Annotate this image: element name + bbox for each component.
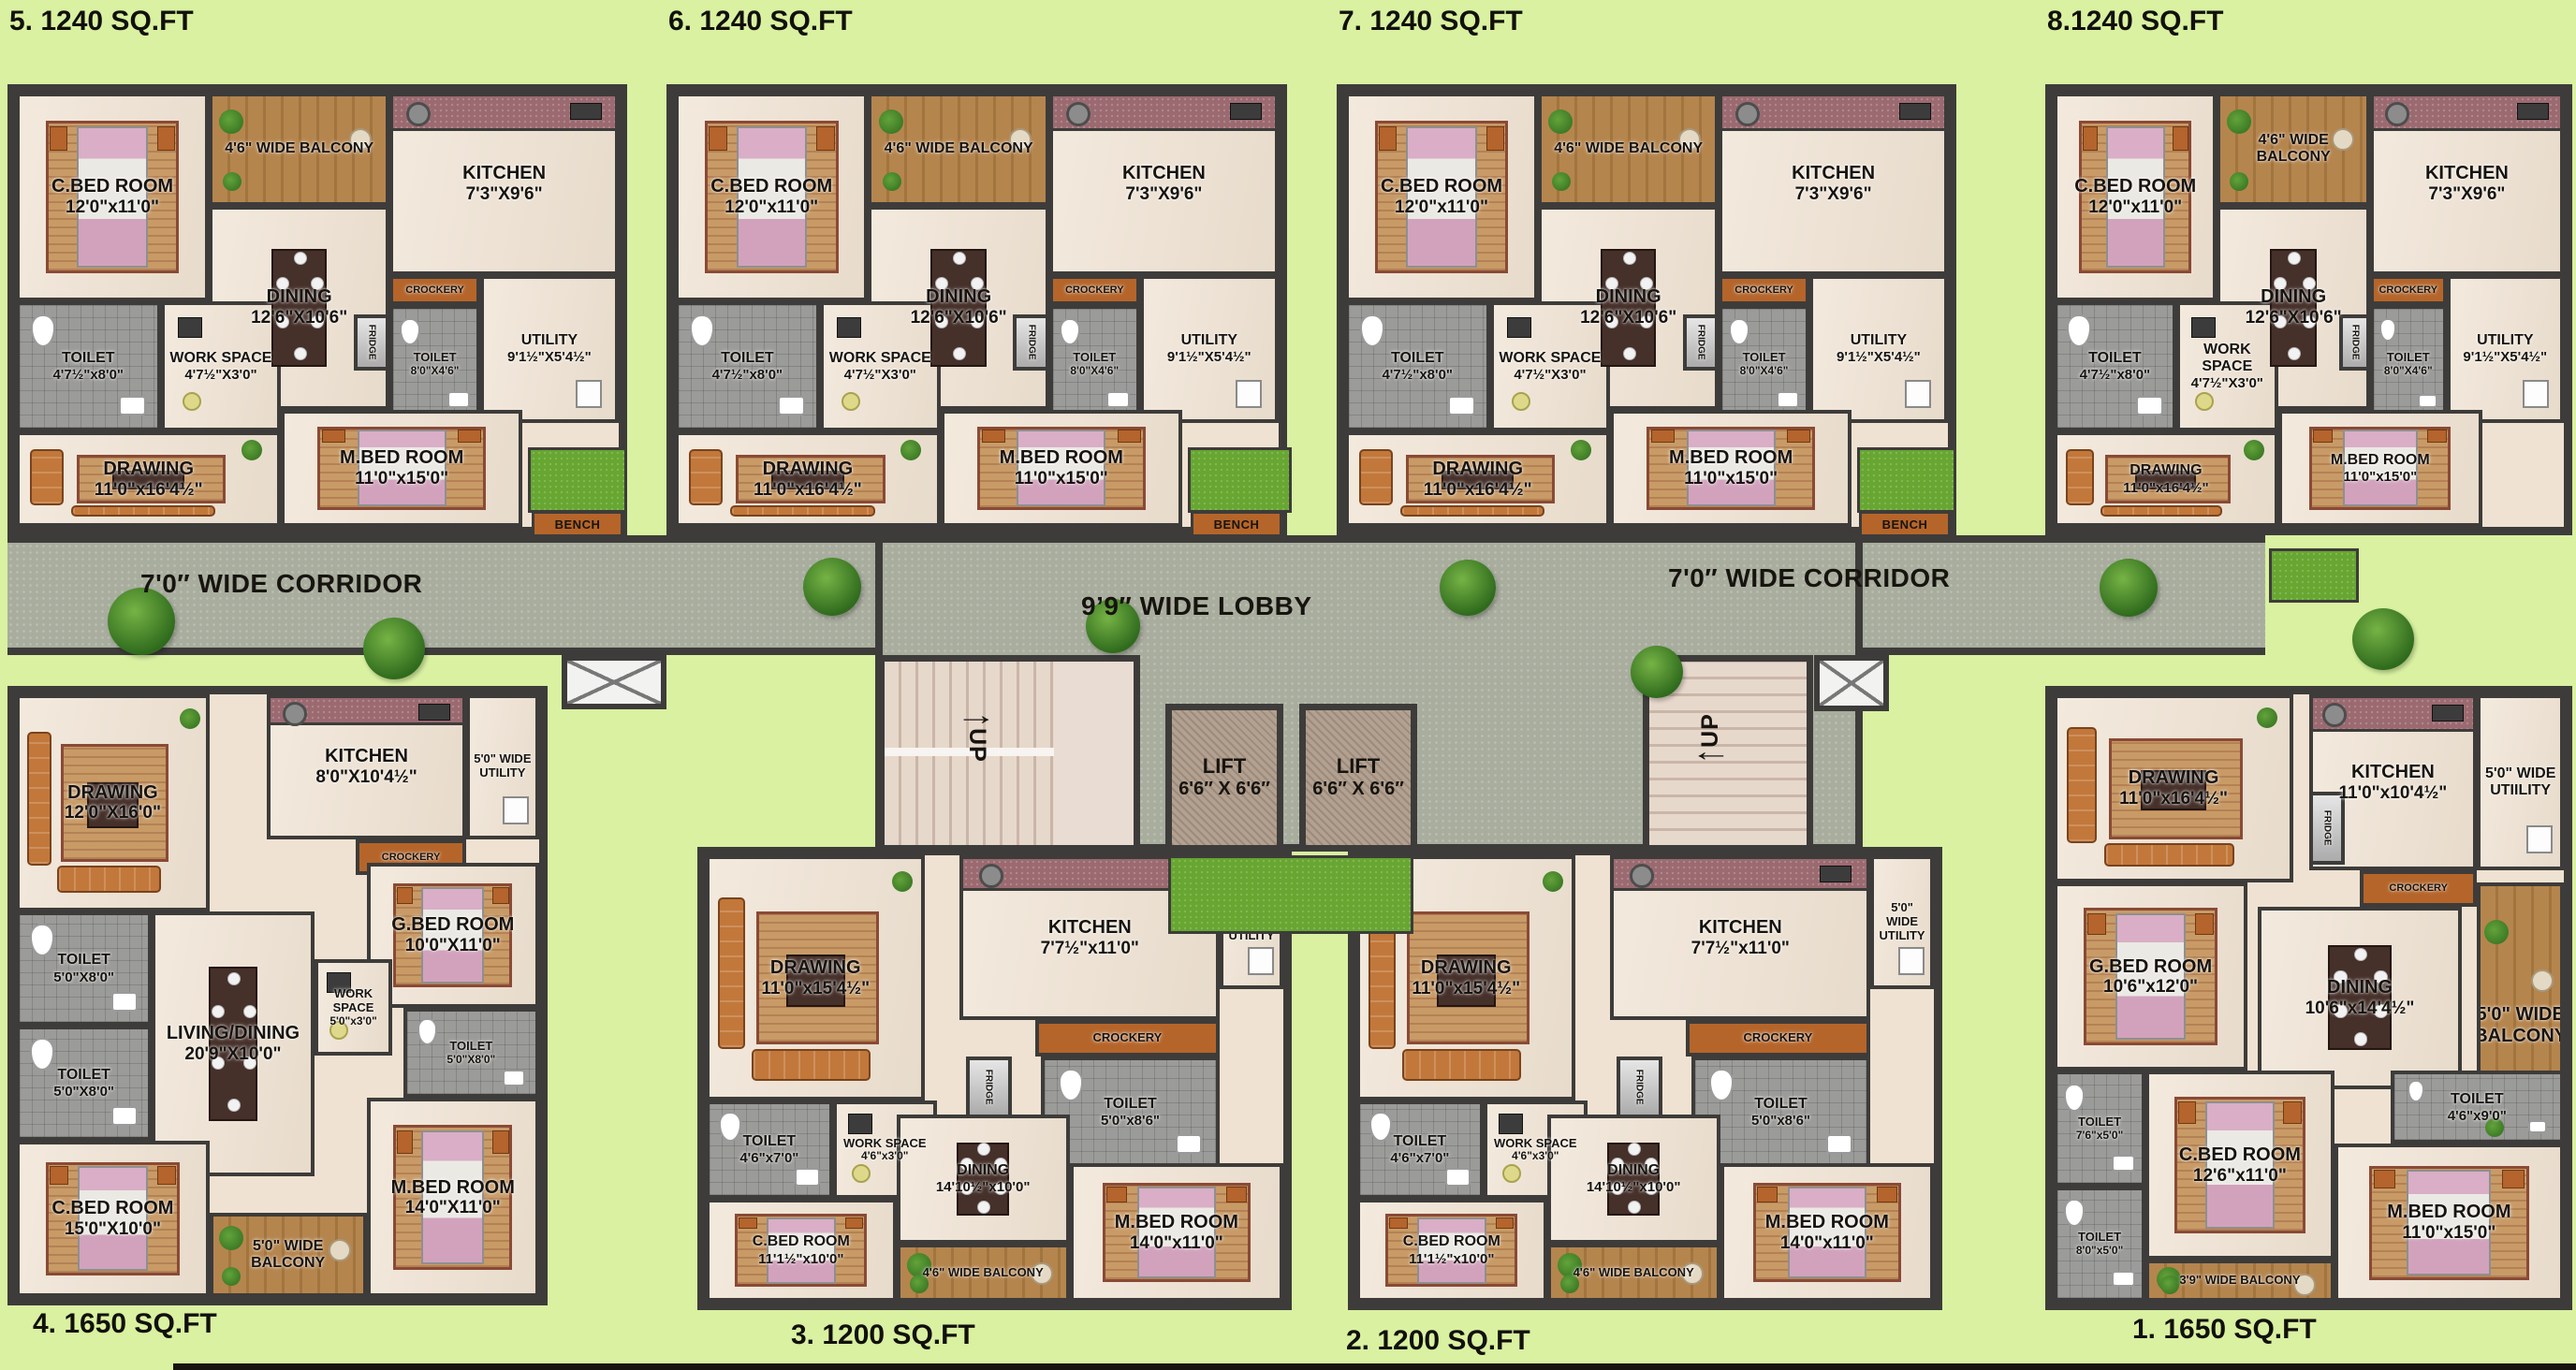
washbasin-icon <box>503 1070 525 1086</box>
up-text: UP <box>963 728 990 763</box>
room-name: 4'6" WIDE BALCONY <box>1554 140 1703 157</box>
unit-2-room-label: TOILET5'0"x8'6" <box>1749 1096 1812 1129</box>
side-table-icon <box>2283 1101 2301 1123</box>
unit-1-room-g-bed-room-5: G.BED ROOM10'6"x12'0" <box>2054 882 2247 1071</box>
room-name: KITCHEN <box>1041 917 1139 939</box>
unit-7-room-label: CROCKERY <box>1733 284 1795 297</box>
side-table-icon <box>492 887 509 904</box>
side-table-icon <box>1787 430 1810 443</box>
room-name: CROCKERY <box>2389 882 2448 895</box>
side-table-icon <box>322 430 345 443</box>
duct-shaft <box>562 655 666 709</box>
desk-icon <box>837 317 861 338</box>
plant-icon <box>883 172 901 191</box>
toilet-icon <box>1709 1069 1734 1101</box>
sofa-icon <box>30 449 64 505</box>
unit-1-room-label: DRAWING11'0"x16'4½" <box>2117 767 2230 809</box>
tree-icon <box>2352 608 2414 670</box>
sink-icon <box>1066 102 1090 126</box>
room-dims: 10'0"X11'0" <box>391 936 514 956</box>
unit-2-room-kitchen-1: KITCHEN7'7½"x11'0" <box>1610 855 1870 1020</box>
unit-8-room-crockery-4: CROCKERY <box>2370 275 2447 305</box>
unit-7-room-4-6-wide-balcony-1: 4'6" WIDE BALCONY <box>1538 93 1719 206</box>
washer-icon <box>576 380 602 408</box>
unit-5-room-label: TOILET8'0"X4'6" <box>409 351 461 377</box>
sink-icon <box>2322 703 2347 727</box>
unit-2-room-5-0-wide-utility-2: 5'0" WIDE UTILITY <box>1870 855 1934 989</box>
unit-6-room-label: WORK SPACE4'7½"X3'0" <box>827 350 933 383</box>
unit-3-room-drawing-0: DRAWING11'0"x15'4½" <box>706 855 925 1100</box>
room-name: M.BED ROOM <box>1765 1212 1889 1233</box>
unit-5-room-label: 4'6" WIDE BALCONY <box>223 140 375 157</box>
room-name: 4'6" WIDE BALCONY <box>225 140 373 157</box>
side-table-icon <box>1877 1187 1897 1202</box>
unit-8-room-label: CROCKERY <box>2377 284 2439 297</box>
unit-2-room-label: M.BED ROOM14'0"x11'0" <box>1764 1212 1891 1253</box>
side-table-icon <box>1379 126 1398 151</box>
room-name: TOILET <box>52 350 124 367</box>
room-name: WORK SPACE <box>1499 350 1601 367</box>
room-name: WORK SPACE <box>320 987 388 1015</box>
room-dims: 12'6"x11'0" <box>2179 1166 2301 1187</box>
side-table-icon <box>2087 913 2106 935</box>
unit-8-room-label: UTILITY9'1½"X5'4½" <box>2461 332 2549 365</box>
side-table-icon <box>2502 1170 2525 1188</box>
room-dims: 7'3"X9'6" <box>462 184 546 205</box>
toilet-icon <box>417 1018 438 1045</box>
unit-2-room-label: TOILET4'6"x7'0" <box>1388 1133 1451 1166</box>
staircase-left: →UP <box>878 655 1140 852</box>
room-dims: 8'0"X4'6" <box>1740 365 1789 378</box>
unit-8-room-kitchen-2: KITCHEN7'3"X9'6" <box>2370 93 2564 275</box>
unit-5-room-toilet-5: TOILET8'0"X4'6" <box>389 305 480 422</box>
room-dims: 12'6"X10'6" <box>2246 308 2342 328</box>
lift-dims: 6'6″ X 6'6″ <box>1312 779 1404 801</box>
room-name: 5'0" WIDE UTILITY <box>472 752 534 780</box>
side-table-icon <box>1106 1187 1127 1202</box>
unit-7-room-m-bed-room-11: M.BED ROOM11'0"x15'0" <box>1610 410 1851 527</box>
room-dims: 7'7½"x11'0" <box>1041 939 1139 959</box>
room-dims: 7'3"X9'6" <box>1122 184 1206 205</box>
side-table-icon <box>458 430 481 443</box>
desk-icon <box>178 317 202 338</box>
toilet-icon <box>1060 318 1080 346</box>
sink-icon <box>283 702 307 726</box>
room-name: TOILET <box>2384 351 2433 365</box>
washer-icon <box>2526 825 2553 853</box>
unit-6-room-kitchen-2: KITCHEN7'3"X9'6" <box>1049 93 1279 275</box>
unit-2-room-m-bed-room-11: M.BED ROOM14'0"x11'0" <box>1720 1163 1934 1302</box>
unit-4-room-work-space-8: WORK SPACE5'0"x3'0" <box>315 959 393 1056</box>
room-dims: 7'3"X9'6" <box>1792 184 1875 205</box>
unit-6-room-c-bed-room-0: C.BED ROOM12'0"x11'0" <box>675 93 868 301</box>
unit-2-room-label: C.BED ROOM11'1½"x10'0" <box>1401 1233 1502 1266</box>
room-dims: 14'10½"x10'0" <box>936 1179 1031 1195</box>
desk-icon <box>2191 317 2216 338</box>
grass-patch <box>2269 548 2359 603</box>
room-name: DRAWING <box>65 782 161 804</box>
room-dims: 14'0"x11'0" <box>1115 1233 1238 1254</box>
chair-icon <box>2531 969 2554 992</box>
grass-patch <box>1168 855 1413 934</box>
room-name: DRAWING <box>1424 459 1532 480</box>
unit-6-room-drawing-10: DRAWING11'0"x16'4½" <box>675 431 941 527</box>
unit-5-room-label: M.BED ROOM11'0"x15'0" <box>338 447 465 488</box>
unit-6-title: 6. 1240 SQ.FT <box>668 6 853 37</box>
sofa-icon <box>730 505 874 517</box>
room-dims: 12'0"x11'0" <box>710 197 832 218</box>
unit-4-room-toilet-9: TOILET5'0"X8'0" <box>403 1008 539 1099</box>
plate-icon <box>212 1005 225 1018</box>
unit-3-room-4-6-wide-balcony-10: 4'6" WIDE BALCONY <box>897 1244 1070 1302</box>
room-dims: 20'9"X10'0" <box>167 1044 300 1065</box>
unit-4-room-label: 5'0" WIDE BALCONY <box>213 1238 363 1272</box>
washbasin-icon <box>2418 394 2437 408</box>
sink-icon <box>2385 102 2409 126</box>
room-dims: 4'6"x3'0" <box>1494 1150 1577 1163</box>
room-name: CROCKERY <box>1743 1031 1812 1045</box>
unit-3-room-label: CROCKERY <box>1090 1031 1164 1045</box>
chair-icon <box>1512 392 1530 411</box>
room-dims: 5'0"X8'0" <box>53 1084 114 1100</box>
unit-5-room-4-6-wide-balcony-1: 4'6" WIDE BALCONY <box>209 93 389 206</box>
floor-plan: 7'0″ WIDE CORRIDOR 9’9″ WIDE LOBBY 7'0″ … <box>0 0 2576 1370</box>
unit-3-room-crockery-3: CROCKERY <box>1035 1020 1220 1056</box>
washbasin-icon <box>1445 1168 1470 1186</box>
chair-icon <box>2195 392 2214 411</box>
unit-6-room-label: TOILET4'7½"x8'0" <box>710 350 785 383</box>
plate-icon <box>1623 347 1636 360</box>
room-dims: 9'1½"X5'4½" <box>507 349 592 365</box>
plant-icon <box>879 109 903 134</box>
unit-4-room-label: LIVING/DINING20'9"X10'0" <box>165 1023 301 1064</box>
up-label: →UP <box>959 702 994 759</box>
room-dims: 9'1½"X5'4½" <box>2463 349 2547 365</box>
room-name: CROCKERY <box>405 284 464 297</box>
room-name: 4'6" WIDE BALCONY <box>1573 1266 1694 1280</box>
unit-6-room-fridge-7: FRIDGE <box>1013 314 1049 371</box>
plant-icon <box>2244 440 2264 460</box>
unit-6-room-label: C.BED ROOM12'0"x11'0" <box>709 176 834 217</box>
unit-3-room-m-bed-room-11: M.BED ROOM14'0"x11'0" <box>1070 1163 1283 1302</box>
unit-8-room-label: C.BED ROOM12'0"x11'0" <box>2072 176 2198 217</box>
plate-icon <box>1623 252 1636 265</box>
toilet-icon <box>2067 314 2091 347</box>
toilet-icon <box>2408 1080 2424 1102</box>
unit-2-room-c-bed-room-8: C.BED ROOM11'1½"x10'0" <box>1356 1199 1547 1302</box>
side-table-icon <box>397 1130 414 1154</box>
sink-icon <box>1630 864 1654 888</box>
room-name: CROCKERY <box>1734 284 1793 297</box>
room-dims: 11'0"x16'4½" <box>2123 480 2208 496</box>
room-name: TOILET <box>2080 350 2151 367</box>
grass-patch <box>528 447 627 513</box>
plant-icon <box>2257 707 2277 728</box>
side-table-icon <box>2313 430 2333 443</box>
plant-icon <box>2230 172 2248 191</box>
washer-icon <box>1236 380 1262 408</box>
room-name: 3'9" WIDE BALCONY <box>2179 1274 2300 1288</box>
lift-1: LIFT6'6″ X 6'6″ <box>1165 704 1283 852</box>
room-dims: 5'0"x3'0" <box>320 1015 388 1028</box>
plate-icon <box>977 1201 990 1214</box>
room-dims: 5'0"X8'0" <box>53 969 114 985</box>
room-name: UTILITY <box>2463 332 2547 349</box>
room-name: C.BED ROOM <box>2074 176 2196 197</box>
unit-6-room-utility-6: UTILITY9'1½"X5'4½" <box>1140 275 1279 423</box>
room-dims: 11'0"x15'0" <box>340 469 463 489</box>
plant-icon <box>2484 920 2509 944</box>
unit-6-room-label: M.BED ROOM11'0"x15'0" <box>998 447 1125 488</box>
room-dims: 11'0"x16'4½" <box>1424 480 1532 501</box>
room-name: M.BED ROOM <box>1000 447 1123 469</box>
room-name: DRAWING <box>2123 462 2208 479</box>
unit-6-room-label: TOILET8'0"X4'6" <box>1068 351 1120 377</box>
room-dims: 4'6"x7'0" <box>1390 1150 1449 1166</box>
chair-icon <box>842 392 860 411</box>
room-dims: 11'1½"x10'0" <box>753 1251 850 1267</box>
unit-1-room-c-bed-room-10: C.BED ROOM12'6"x11'0" <box>2145 1071 2334 1259</box>
room-dims: 11'0"x15'4½" <box>1412 979 1520 999</box>
footer-bar <box>173 1363 2576 1370</box>
room-name: TOILET <box>1101 1096 1160 1113</box>
side-table-icon <box>2374 1170 2396 1188</box>
room-name: KITCHEN <box>1691 917 1790 939</box>
unit-6-room-crockery-4: CROCKERY <box>1049 275 1140 305</box>
room-dims: 11'0"x16'4½" <box>95 480 203 501</box>
room-dims: 4'7½"X3'0" <box>169 367 271 383</box>
unit-1-room-label: 5'0" WIDE UTIILITY <box>2481 765 2560 799</box>
sofa-icon <box>71 505 215 517</box>
side-table-icon <box>982 430 1005 443</box>
unit-8-room-toilet-5: TOILET8'0"X4'6" <box>2370 305 2447 422</box>
toilet-icon <box>30 1038 54 1071</box>
unit-8-room-m-bed-room-11: M.BED ROOM11'0"x15'0" <box>2278 410 2482 527</box>
chair-icon <box>1502 1164 1521 1183</box>
room-dims: 11'0"x15'0" <box>2331 469 2430 485</box>
lobby-label: 9’9″ WIDE LOBBY <box>1081 591 1312 621</box>
unit-3-room-label: TOILET5'0"x8'6" <box>1099 1096 1162 1129</box>
room-name: M.BED ROOM <box>2387 1202 2510 1223</box>
chair-icon <box>852 1164 871 1183</box>
unit-8-room-4-6-wide-balcony-1: 4'6" WIDE BALCONY <box>2217 93 2370 206</box>
corridor-left-label: 7'0″ WIDE CORRIDOR <box>140 569 422 599</box>
unit-8-title: 8.1240 SQ.FT <box>2047 6 2223 37</box>
room-name: UTILITY <box>507 332 592 349</box>
unit-8: C.BED ROOM12'0"x11'0"4'6" WIDE BALCONYKI… <box>2045 84 2572 535</box>
room-name: G.BED ROOM <box>391 914 514 936</box>
room-name: DINING <box>911 286 1007 308</box>
stove-icon <box>1230 103 1262 120</box>
unit-1-title: 1. 1650 SQ.FT <box>2132 1314 2317 1346</box>
plant-icon <box>1548 109 1573 134</box>
unit-4-room-5-0-wide-utility-2: 5'0" WIDE UTILITY <box>466 694 539 839</box>
unit-3-room-label: DRAWING11'0"x15'4½" <box>759 957 871 998</box>
room-dims: 11'0"x15'4½" <box>761 979 870 999</box>
room-dims: 8'0"x5'0" <box>2076 1245 2123 1258</box>
unit-8-room-label: WORK SPACE4'7½"X3'0" <box>2180 342 2275 392</box>
room-dims: 7'6"x5'0" <box>2076 1130 2123 1143</box>
room-dims: 12'6"X10'6" <box>911 308 1007 328</box>
room-dims: 9'1½"X5'4½" <box>1837 349 1921 365</box>
room-name: DRAWING <box>1412 957 1520 979</box>
unit-2-room-label: CROCKERY <box>1741 1031 1814 1045</box>
unit-3-room-label: WORK SPACE4'6"x3'0" <box>842 1137 929 1163</box>
side-table-icon <box>2427 430 2447 443</box>
room-name: TOILET <box>1070 351 1119 365</box>
room-name: TOILET <box>1390 1133 1449 1150</box>
side-table-icon <box>816 126 835 151</box>
room-name: TOILET <box>2448 1091 2507 1108</box>
side-table-icon <box>492 1130 509 1154</box>
up-text: UP <box>1697 713 1724 748</box>
unit-8-room-label: TOILET4'7½"x8'0" <box>2078 350 2153 383</box>
unit-6-room-label: CROCKERY <box>1063 284 1126 297</box>
room-dims: 4'6"x7'0" <box>739 1150 798 1166</box>
washbasin-icon <box>1777 391 1799 407</box>
unit-5-room-label: KITCHEN7'3"X9'6" <box>461 163 548 204</box>
room-name: CROCKERY <box>382 852 441 864</box>
room-name: TOILET <box>1740 351 1789 365</box>
unit-2-room-crockery-3: CROCKERY <box>1686 1020 1870 1056</box>
plant-icon <box>241 440 262 460</box>
unit-2-room-toilet-6: TOILET4'6"x7'0" <box>1356 1100 1484 1199</box>
room-name: DRAWING <box>761 957 870 979</box>
room-dims: 4'6"x3'0" <box>843 1150 927 1163</box>
room-dims: 8'0"X10'4½" <box>315 767 417 788</box>
room-name: M.BED ROOM <box>1669 447 1793 469</box>
room-name: TOILET <box>1382 350 1453 367</box>
plate-icon <box>2288 347 2301 360</box>
sofa-icon <box>2100 505 2222 517</box>
unit-2: DRAWING11'0"x15'4½"KITCHEN7'7½"x11'0"5'0… <box>1348 847 1942 1310</box>
room-name: DRAWING <box>95 459 203 480</box>
sofa-icon <box>689 449 723 505</box>
room-name: LIVING/DINING <box>167 1023 300 1044</box>
tree-icon <box>363 618 425 679</box>
chair-icon <box>183 392 201 411</box>
unit-1-room-label: 5'0" WIDE BALCONY <box>2477 1004 2564 1047</box>
room-dims: 11'0"x16'4½" <box>2119 789 2228 809</box>
unit-8-room-drawing-10: DRAWING11'0"x16'4½" <box>2054 431 2278 527</box>
room-name: CROCKERY <box>1092 1031 1162 1045</box>
room-dims: 14'0"X11'0" <box>391 1198 515 1218</box>
unit-5-room-label: FRIDGE <box>366 323 376 362</box>
unit-7-room-label: FRIDGE <box>1695 323 1705 362</box>
plant-icon <box>219 109 243 134</box>
unit-4-room-label: G.BED ROOM10'0"X11'0" <box>389 914 516 955</box>
room-name: UTILITY <box>1837 332 1921 349</box>
unit-4-room-kitchen-1: KITCHEN8'0"X10'4½" <box>267 694 465 839</box>
unit-1-room-label: C.BED ROOM12'6"x11'0" <box>2177 1144 2303 1186</box>
unit-4-room-label: KITCHEN8'0"X10'4½" <box>314 746 418 787</box>
unit-7-room-toilet-5: TOILET8'0"X4'6" <box>1719 305 1809 422</box>
unit-3-room-fridge-4: FRIDGE <box>966 1057 1012 1119</box>
unit-7-room-label: DRAWING11'0"x16'4½" <box>1422 459 1534 500</box>
unit-4-room-label: 5'0" WIDE UTILITY <box>470 752 535 780</box>
washbasin-icon <box>1176 1134 1203 1154</box>
unit-5-room-label: CROCKERY <box>403 284 466 297</box>
unit-4-room-toilet-5: TOILET5'0"X8'0" <box>16 911 152 1026</box>
washer-icon <box>503 796 529 824</box>
room-dims: 4'7½"X3'0" <box>1499 367 1601 383</box>
sink-icon <box>406 102 431 126</box>
unit-4-room-label: M.BED ROOM14'0"X11'0" <box>389 1177 517 1218</box>
room-name: DINING <box>2305 977 2415 998</box>
stove-icon <box>1820 866 1851 882</box>
washbasin-icon <box>447 391 470 407</box>
room-dims: 5'0"x8'6" <box>1751 1113 1810 1129</box>
room-dims: 9'1½"X5'4½" <box>1167 349 1251 365</box>
unit-5-room-drawing-10: DRAWING11'0"x16'4½" <box>16 431 281 527</box>
unit-1-room-toilet-12: TOILET4'6"x9'0" <box>2391 1071 2564 1144</box>
side-table-icon <box>50 1166 68 1184</box>
room-dims: 4'6"x9'0" <box>2448 1108 2507 1124</box>
plate-icon <box>1628 1143 1641 1156</box>
washbasin-icon <box>1106 391 1129 408</box>
unit-1: DRAWING11'0"x16'4½"KITCHEN11'0"x10'4½"5'… <box>2045 686 2572 1310</box>
plate-icon <box>227 972 241 985</box>
sofa-icon <box>27 732 51 866</box>
unit-5-room-c-bed-room-0: C.BED ROOM12'0"x11'0" <box>16 93 209 301</box>
washbasin-icon <box>778 396 805 415</box>
room-name: TOILET <box>2076 1231 2123 1245</box>
toilet-icon <box>2379 318 2397 342</box>
side-table-icon <box>709 126 727 151</box>
unit-4-room-label: TOILET5'0"X8'0" <box>51 1067 116 1100</box>
room-dims: 8'0"X4'6" <box>2384 365 2433 378</box>
side-table-icon <box>157 126 176 151</box>
toilet-icon <box>31 314 55 347</box>
room-name: M.BED ROOM <box>1115 1212 1238 1233</box>
room-name: C.BED ROOM <box>51 176 173 197</box>
unit-5-room-label: WORK SPACE4'7½"X3'0" <box>168 350 273 383</box>
stove-icon <box>418 704 450 721</box>
unit-1-room-label: FRIDGE <box>2321 809 2332 848</box>
unit-4-title: 4. 1650 SQ.FT <box>33 1308 217 1340</box>
room-name: DINING <box>251 286 347 308</box>
unit-8-room-fridge-7: FRIDGE <box>2339 314 2370 371</box>
unit-3-room-label: TOILET4'6"x7'0" <box>738 1133 800 1166</box>
unit-4-room-5-0-wide-balcony-11: 5'0" WIDE BALCONY <box>210 1213 367 1297</box>
unit-3-room-label: FRIDGE <box>984 1068 994 1107</box>
unit-4-room-m-bed-room-12: M.BED ROOM14'0"X11'0" <box>367 1098 539 1297</box>
lift-name: LIFT <box>1312 754 1404 779</box>
unit-4: DRAWING12'0"X16'0"KITCHEN8'0"X10'4½"5'0"… <box>7 686 548 1305</box>
sofa-icon <box>718 897 745 1050</box>
unit-4-room-living-dining-7: LIVING/DINING20'9"X10'0" <box>152 911 314 1176</box>
unit-5-room-label: DRAWING11'0"x16'4½" <box>93 459 205 500</box>
room-dims: 10'6"x14'4½" <box>2305 998 2415 1019</box>
room-dims: 5'0"X8'0" <box>446 1054 495 1067</box>
side-table-icon <box>2195 913 2214 935</box>
plate-icon <box>1628 1201 1641 1214</box>
plate-icon <box>2354 1032 2367 1045</box>
unit-8-room-utility-6: UTILITY9'1½"X5'4½" <box>2447 275 2564 423</box>
tree-icon <box>803 558 861 616</box>
unit-8-room-label: DINING12'6"X10'6" <box>2244 286 2344 328</box>
side-table-icon <box>2178 1101 2196 1123</box>
toilet-icon <box>400 318 420 345</box>
unit-4-room-c-bed-room-10: C.BED ROOM15'0"X10'0" <box>16 1141 210 1297</box>
washbasin-icon <box>795 1168 819 1186</box>
unit-5-room-utility-6: UTILITY9'1½"X5'4½" <box>480 275 619 423</box>
unit-5-room-toilet-8: TOILET4'7½"x8'0" <box>16 301 161 431</box>
side-table-icon <box>1486 126 1505 151</box>
side-table-icon <box>2083 126 2099 151</box>
unit-4-room-label: TOILET5'0"X8'0" <box>445 1040 497 1066</box>
plate-icon <box>294 347 307 360</box>
